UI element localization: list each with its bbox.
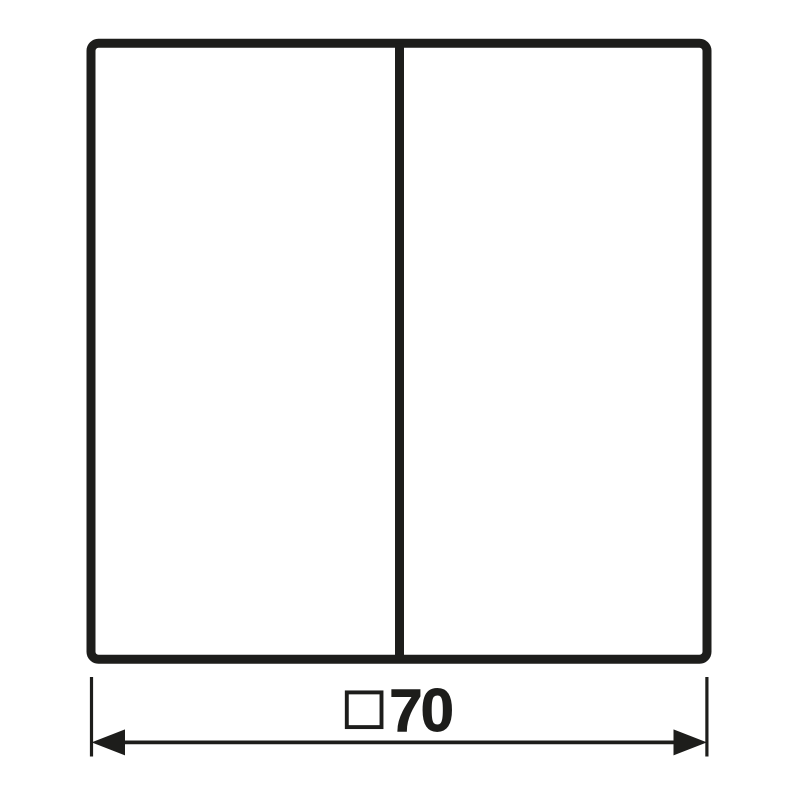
svg-text:70: 70 — [389, 677, 452, 744]
